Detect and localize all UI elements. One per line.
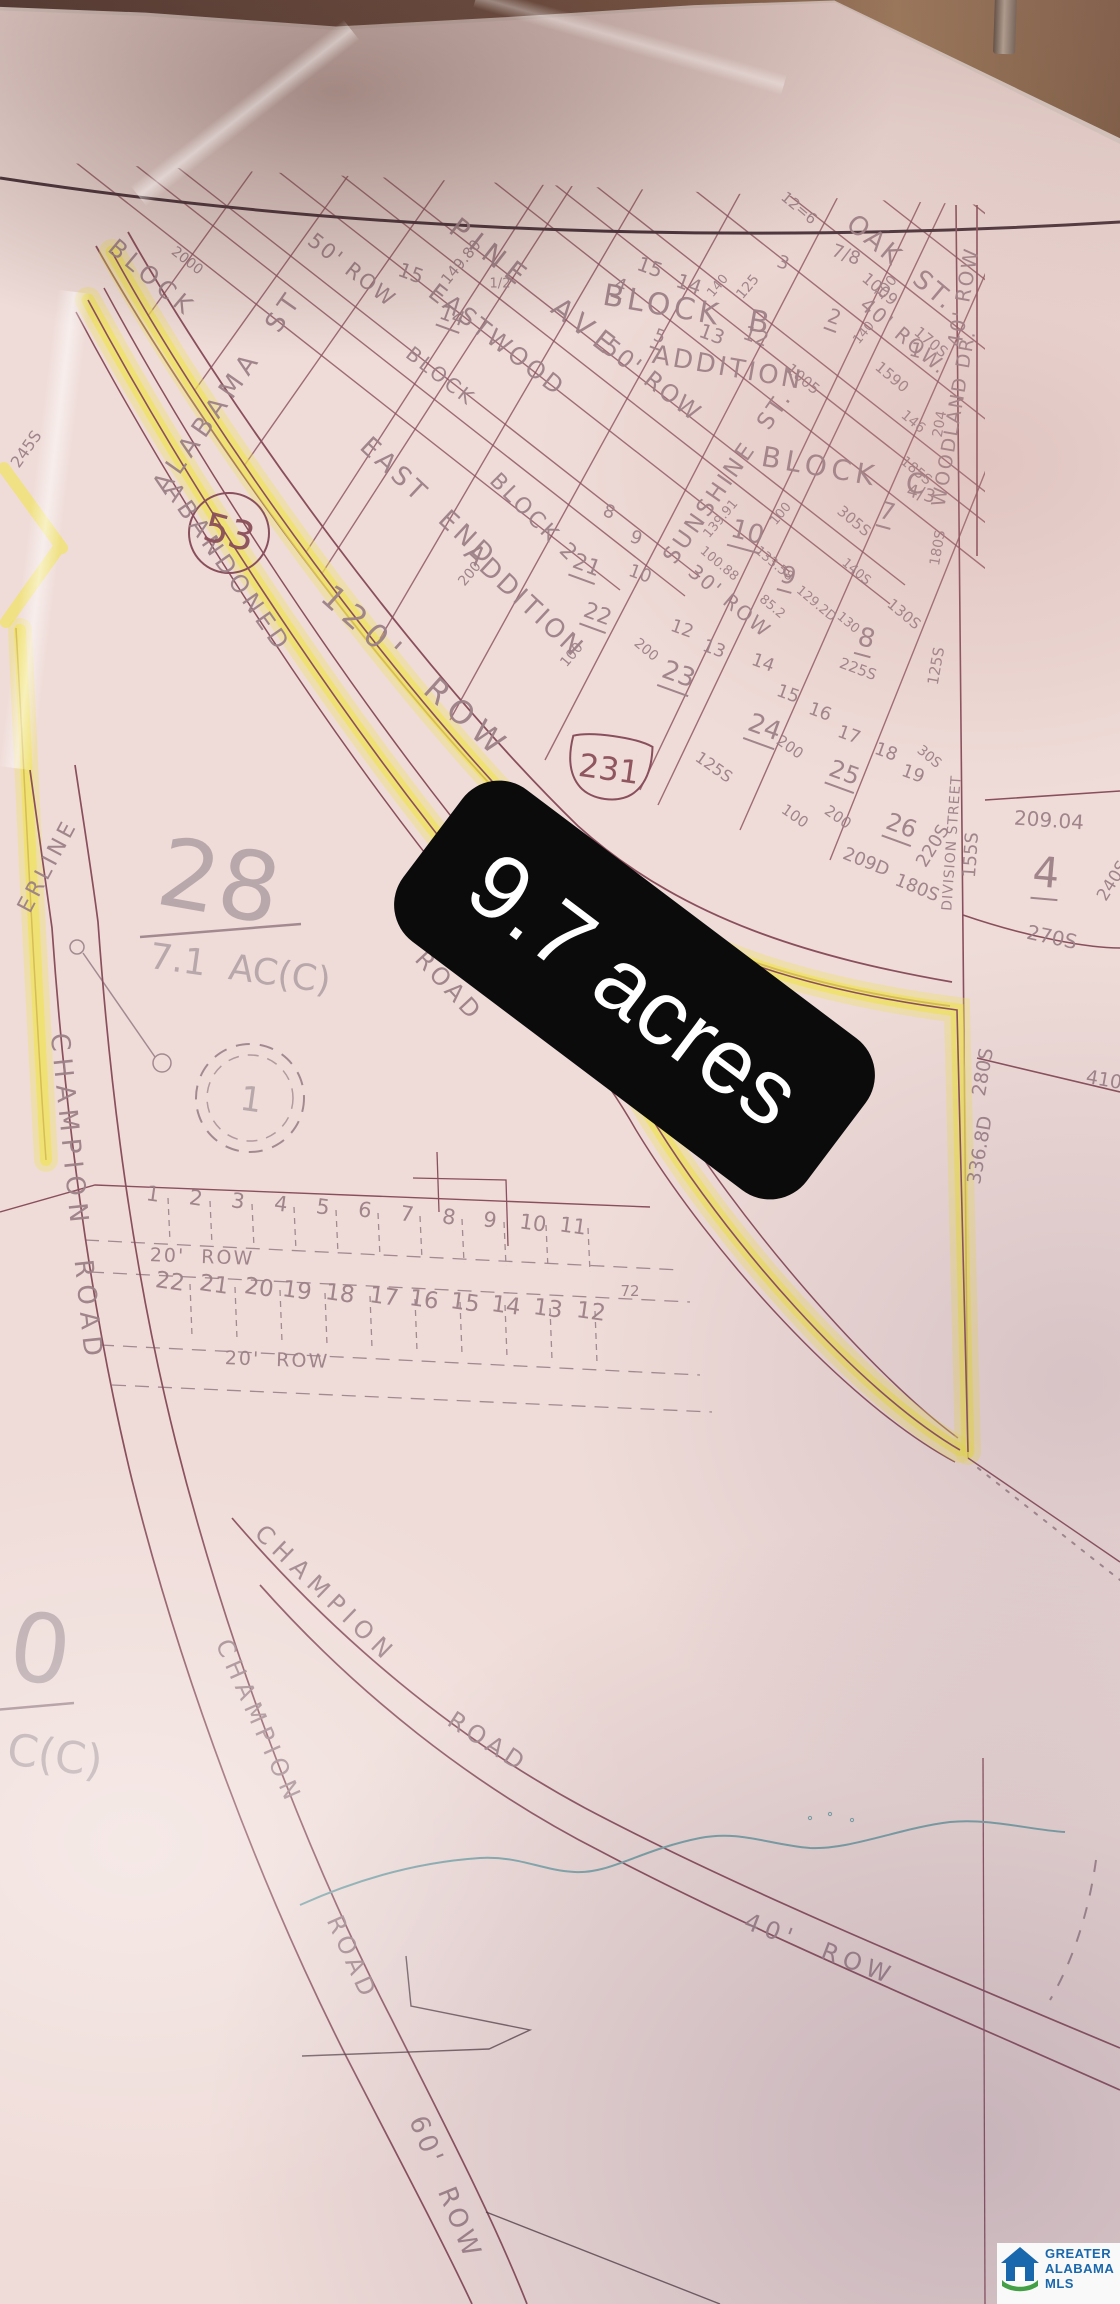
listing-photo: BLOCKPINE AVEALABAMA ST50' ROWEASTWOODBL… (0, 0, 1120, 2304)
mls-line-2: ALABAMA (1045, 2261, 1114, 2276)
mls-line-1: GREATER (1045, 2246, 1114, 2261)
mls-watermark-text: GREATER ALABAMA MLS (1045, 2246, 1114, 2291)
map-linework (0, 0, 1120, 2304)
house-icon (1000, 2246, 1040, 2292)
route-231-shield (565, 730, 654, 804)
mls-line-3: MLS (1045, 2276, 1114, 2291)
mls-watermark: GREATER ALABAMA MLS (997, 2243, 1120, 2304)
